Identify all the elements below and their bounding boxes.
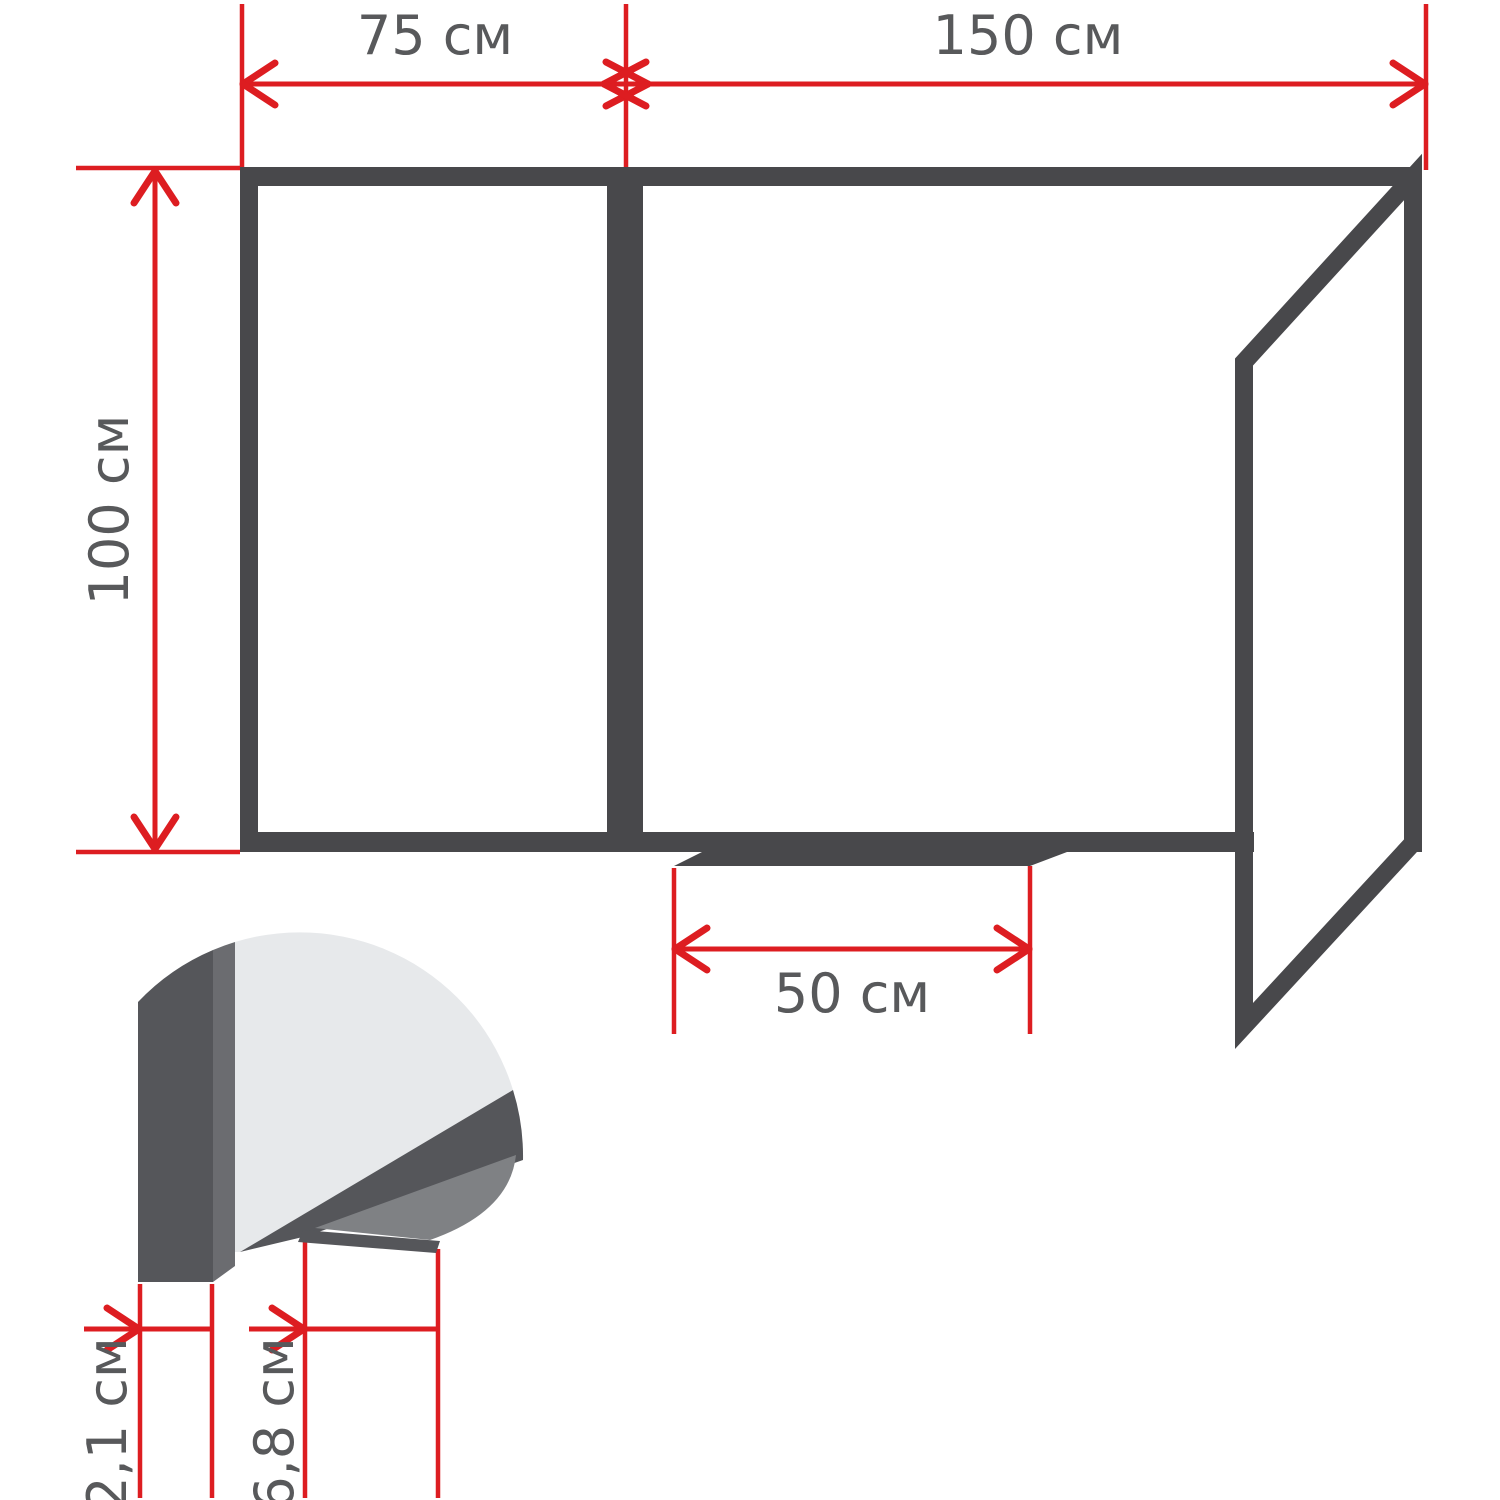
frame-bottom-bar <box>240 832 1254 852</box>
whiteboard-dimension-diagram: 75 см 150 см 100 см 50 см <box>0 0 1500 1500</box>
main-panel-width-label: 150 см <box>933 4 1124 67</box>
board-frame <box>240 167 1422 1026</box>
profile-detail <box>138 932 523 1282</box>
profile-slab <box>138 950 213 1282</box>
board-height-label: 100 см <box>78 415 141 606</box>
frame-left-bar <box>240 167 258 852</box>
left-panel-width-label: 75 см <box>357 4 513 67</box>
profile-edge-strip <box>213 942 235 1282</box>
frame-hinge-bar <box>1404 167 1422 852</box>
open-door-panel <box>1244 177 1413 1026</box>
tray-width-label: 50 см <box>774 962 930 1025</box>
profile-thickness-label: 2,1 см <box>76 1337 139 1500</box>
tray-depth-label: 6,8 см <box>243 1337 306 1500</box>
frame-center-divider <box>607 186 643 832</box>
marker-tray <box>674 852 1067 866</box>
frame-top-bar <box>240 167 1422 186</box>
